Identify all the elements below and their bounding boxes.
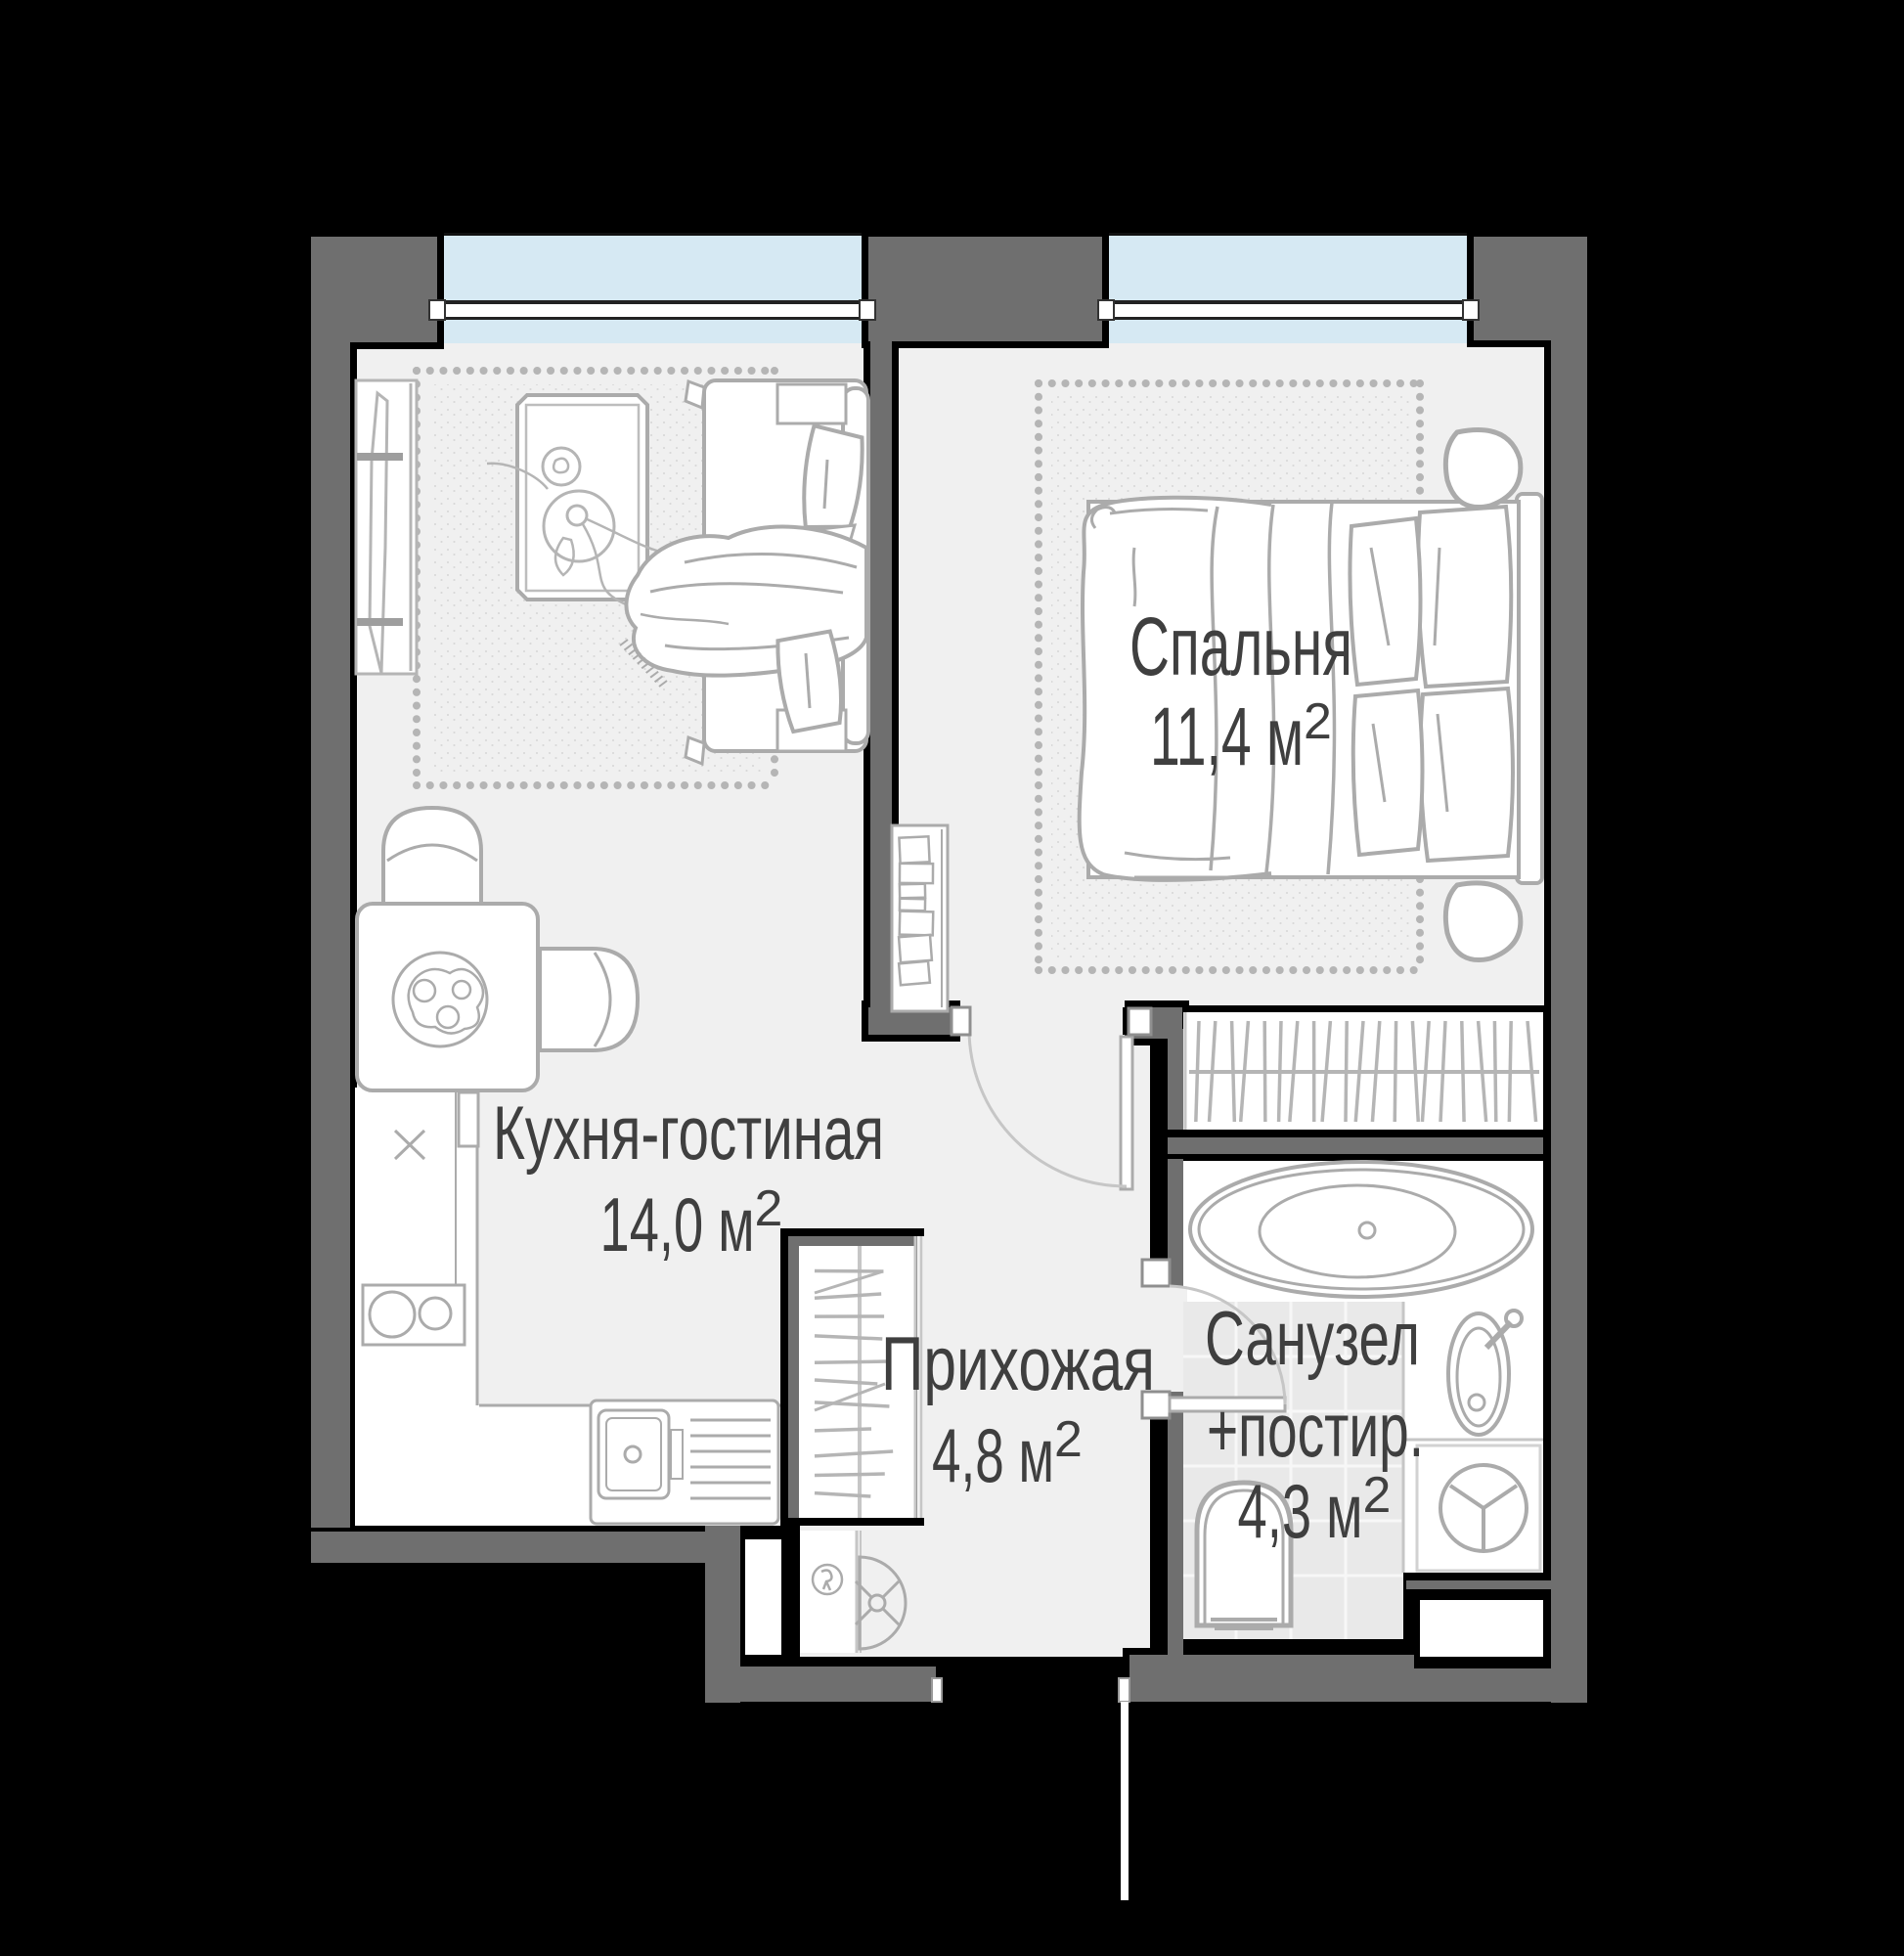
svg-text:Санузел: Санузел	[1205, 1295, 1420, 1381]
svg-text:11,4 м: 11,4 м	[1150, 690, 1304, 782]
svg-text:4,8 м: 4,8 м	[932, 1412, 1054, 1498]
svg-text:4,3 м: 4,3 м	[1238, 1468, 1363, 1554]
svg-text:2: 2	[755, 1180, 783, 1237]
svg-text:2: 2	[1054, 1411, 1083, 1468]
svg-text:+постир.: +постир.	[1207, 1387, 1424, 1473]
svg-text:14,0 м: 14,0 м	[600, 1181, 755, 1267]
svg-text:Кухня-гостиная: Кухня-гостиная	[493, 1089, 884, 1176]
svg-text:2: 2	[1304, 693, 1332, 750]
svg-text:Прихожая: Прихожая	[881, 1320, 1155, 1406]
svg-text:2: 2	[1363, 1467, 1392, 1524]
svg-text:Спальня: Спальня	[1129, 600, 1352, 692]
